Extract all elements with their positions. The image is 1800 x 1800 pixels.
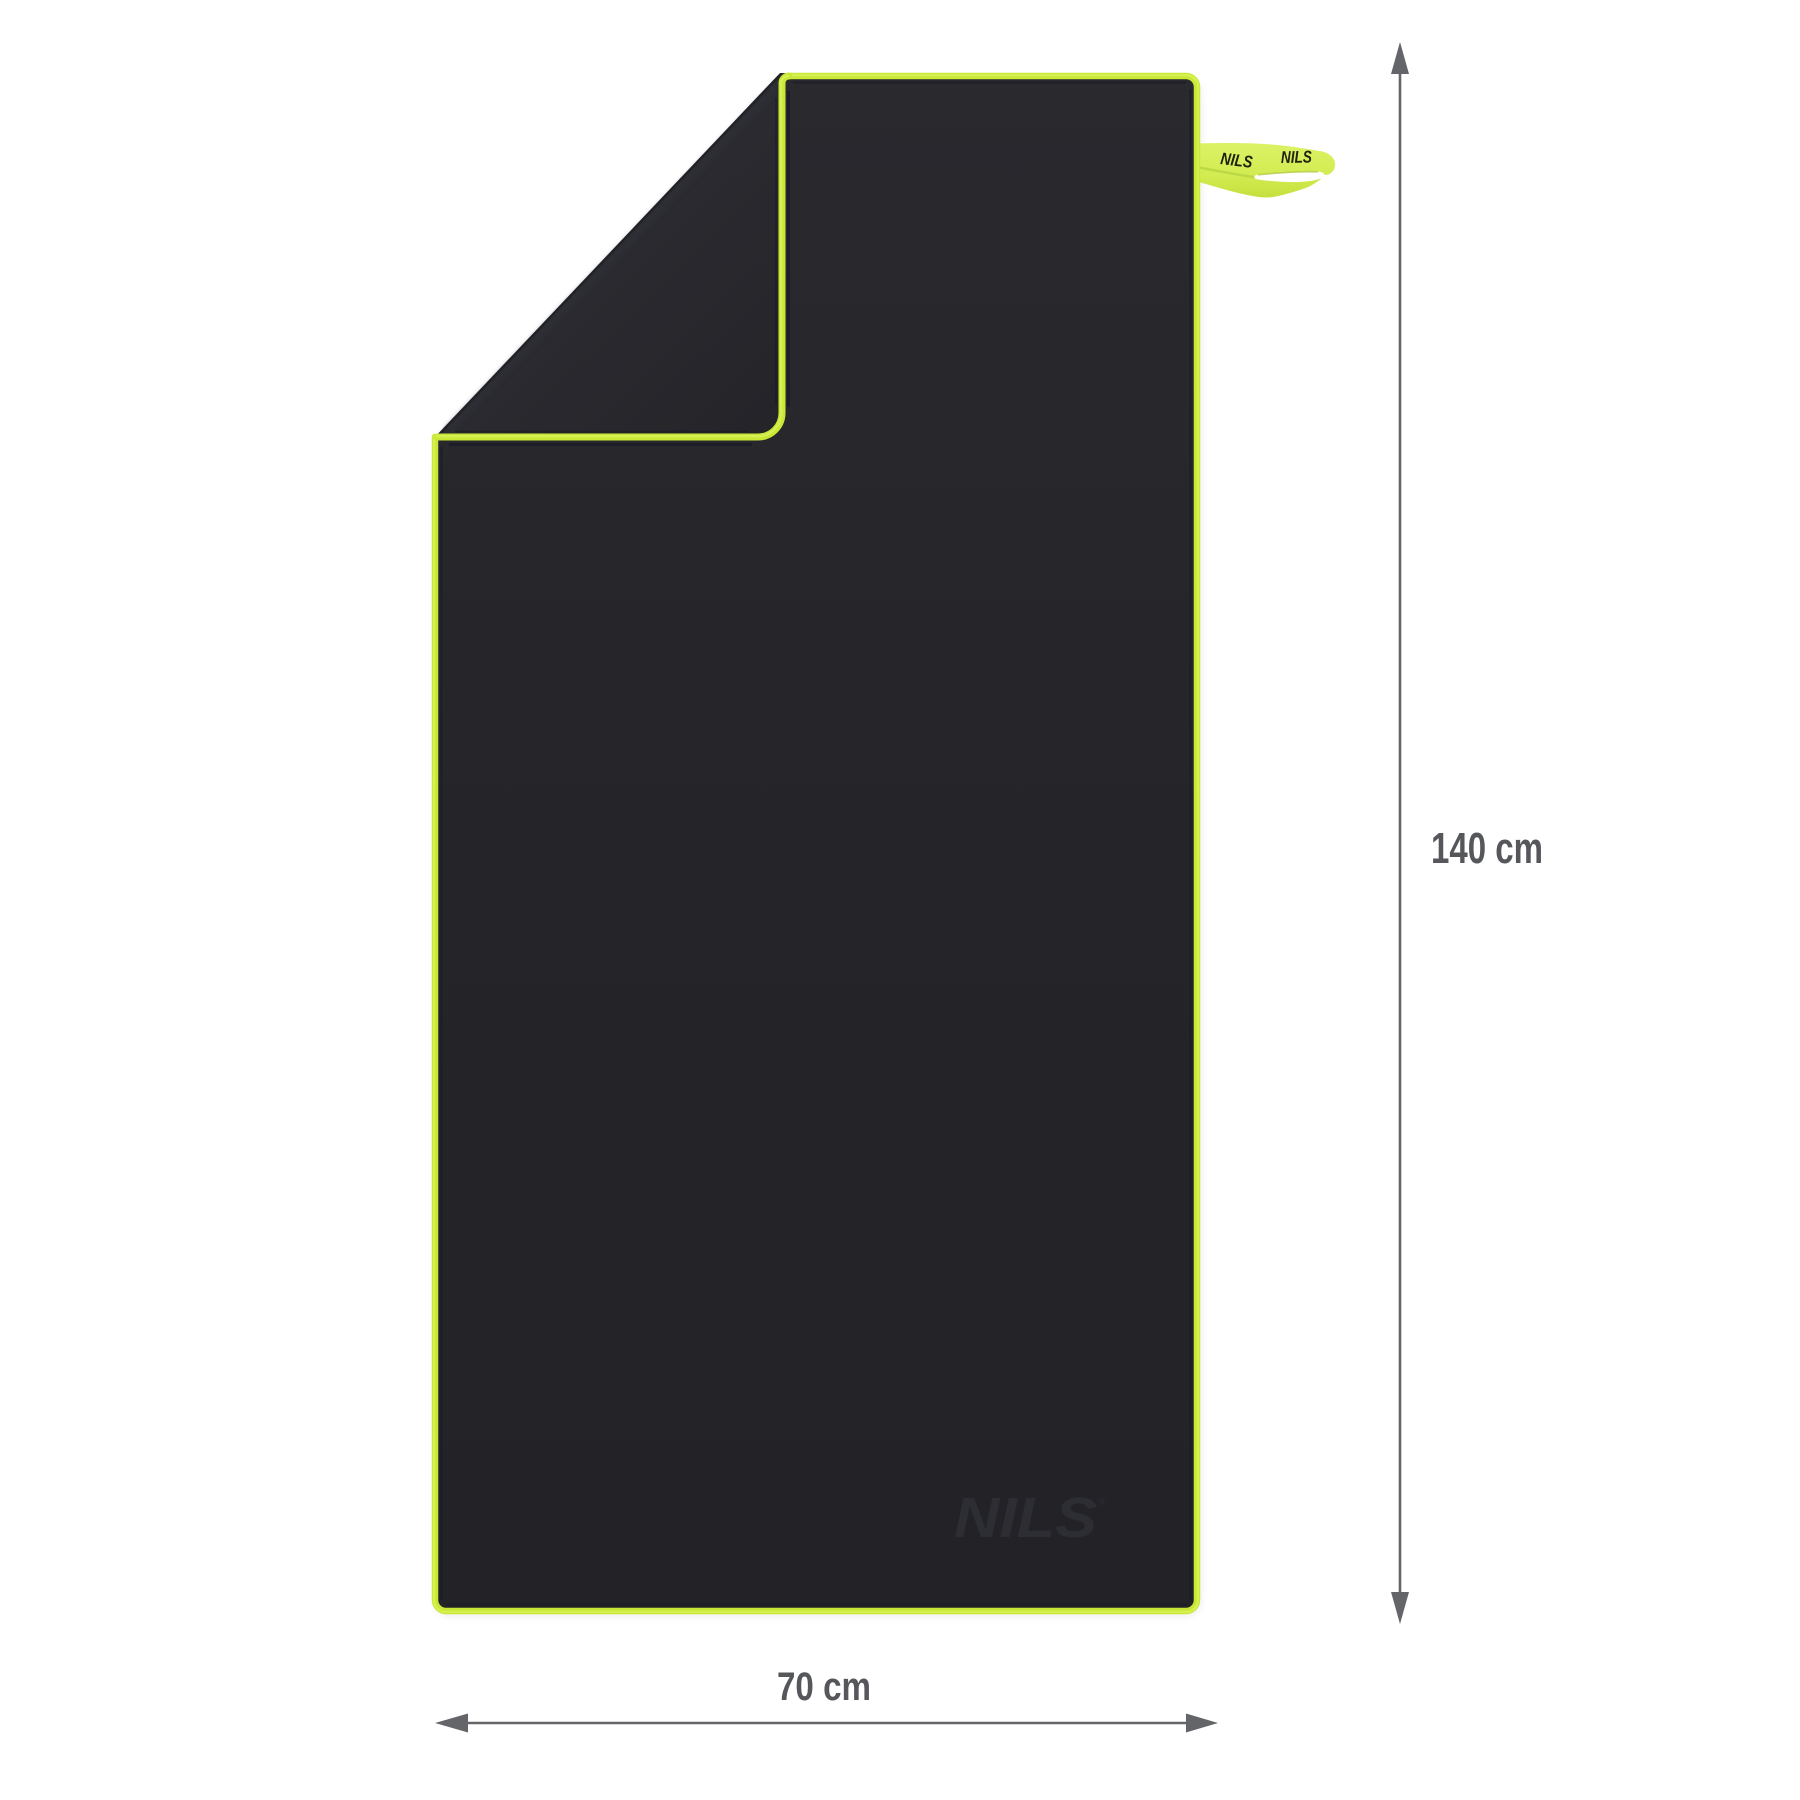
- svg-text:NILS: NILS: [1220, 149, 1255, 172]
- svg-text:140 cm: 140 cm: [1431, 824, 1543, 873]
- svg-text:NILS: NILS: [1281, 147, 1313, 167]
- svg-text:70 cm: 70 cm: [777, 1665, 871, 1709]
- svg-text:NILS: NILS: [954, 1486, 1097, 1550]
- svg-text:®: ®: [1098, 1495, 1107, 1509]
